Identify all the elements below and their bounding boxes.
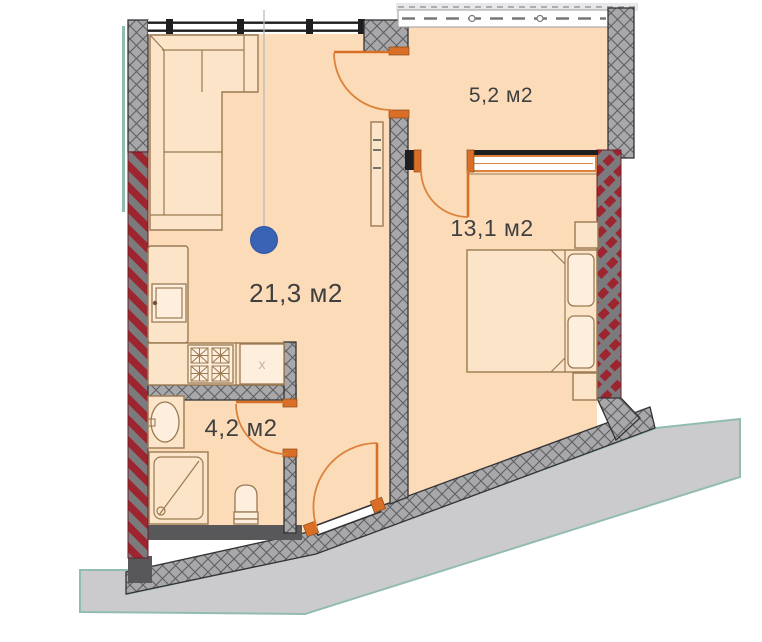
floor-plan-svg: x bbox=[0, 0, 762, 642]
shower bbox=[149, 452, 208, 524]
stove bbox=[188, 345, 233, 383]
pillow bbox=[568, 254, 594, 306]
nightstand-bottom bbox=[573, 373, 597, 400]
window-living bbox=[148, 19, 366, 34]
exterior-wall-right-red bbox=[597, 150, 621, 400]
exterior-wall-left-red bbox=[128, 152, 148, 558]
nightstand-top bbox=[575, 222, 598, 248]
kitchen-counter-left bbox=[148, 246, 188, 343]
exterior-wall-left-top bbox=[128, 20, 148, 152]
corner-block-bottom-left bbox=[128, 556, 152, 583]
cabinet-handle bbox=[153, 301, 157, 305]
pillow bbox=[568, 316, 594, 368]
washbasin bbox=[148, 396, 184, 448]
window-bedroom bbox=[468, 156, 597, 174]
toilet bbox=[234, 485, 258, 524]
floor-plan-page: x bbox=[0, 0, 762, 642]
label-balcony-area: 5,2 м2 bbox=[469, 84, 533, 107]
label-bedroom-area: 13,1 м2 bbox=[450, 215, 533, 241]
bathroom-bottom-wall bbox=[148, 525, 302, 540]
label-living-area: 21,3 м2 bbox=[249, 278, 343, 308]
label-bathroom-area: 4,2 м2 bbox=[205, 415, 278, 442]
wall-bathroom-right-upper bbox=[284, 342, 296, 406]
wall-divider-bottom bbox=[390, 115, 408, 504]
balcony-glazing bbox=[396, 3, 638, 27]
kitchen-sink-unit: x bbox=[240, 344, 284, 384]
radiator bbox=[371, 122, 383, 226]
wall-bathroom-right-lower bbox=[284, 450, 296, 533]
kitchen-counter-bottom: x bbox=[148, 343, 284, 385]
dishwasher-mark: x bbox=[259, 356, 266, 372]
teal-edge-left bbox=[122, 26, 125, 212]
wall-balcony-right bbox=[608, 8, 634, 158]
bed bbox=[467, 250, 597, 372]
